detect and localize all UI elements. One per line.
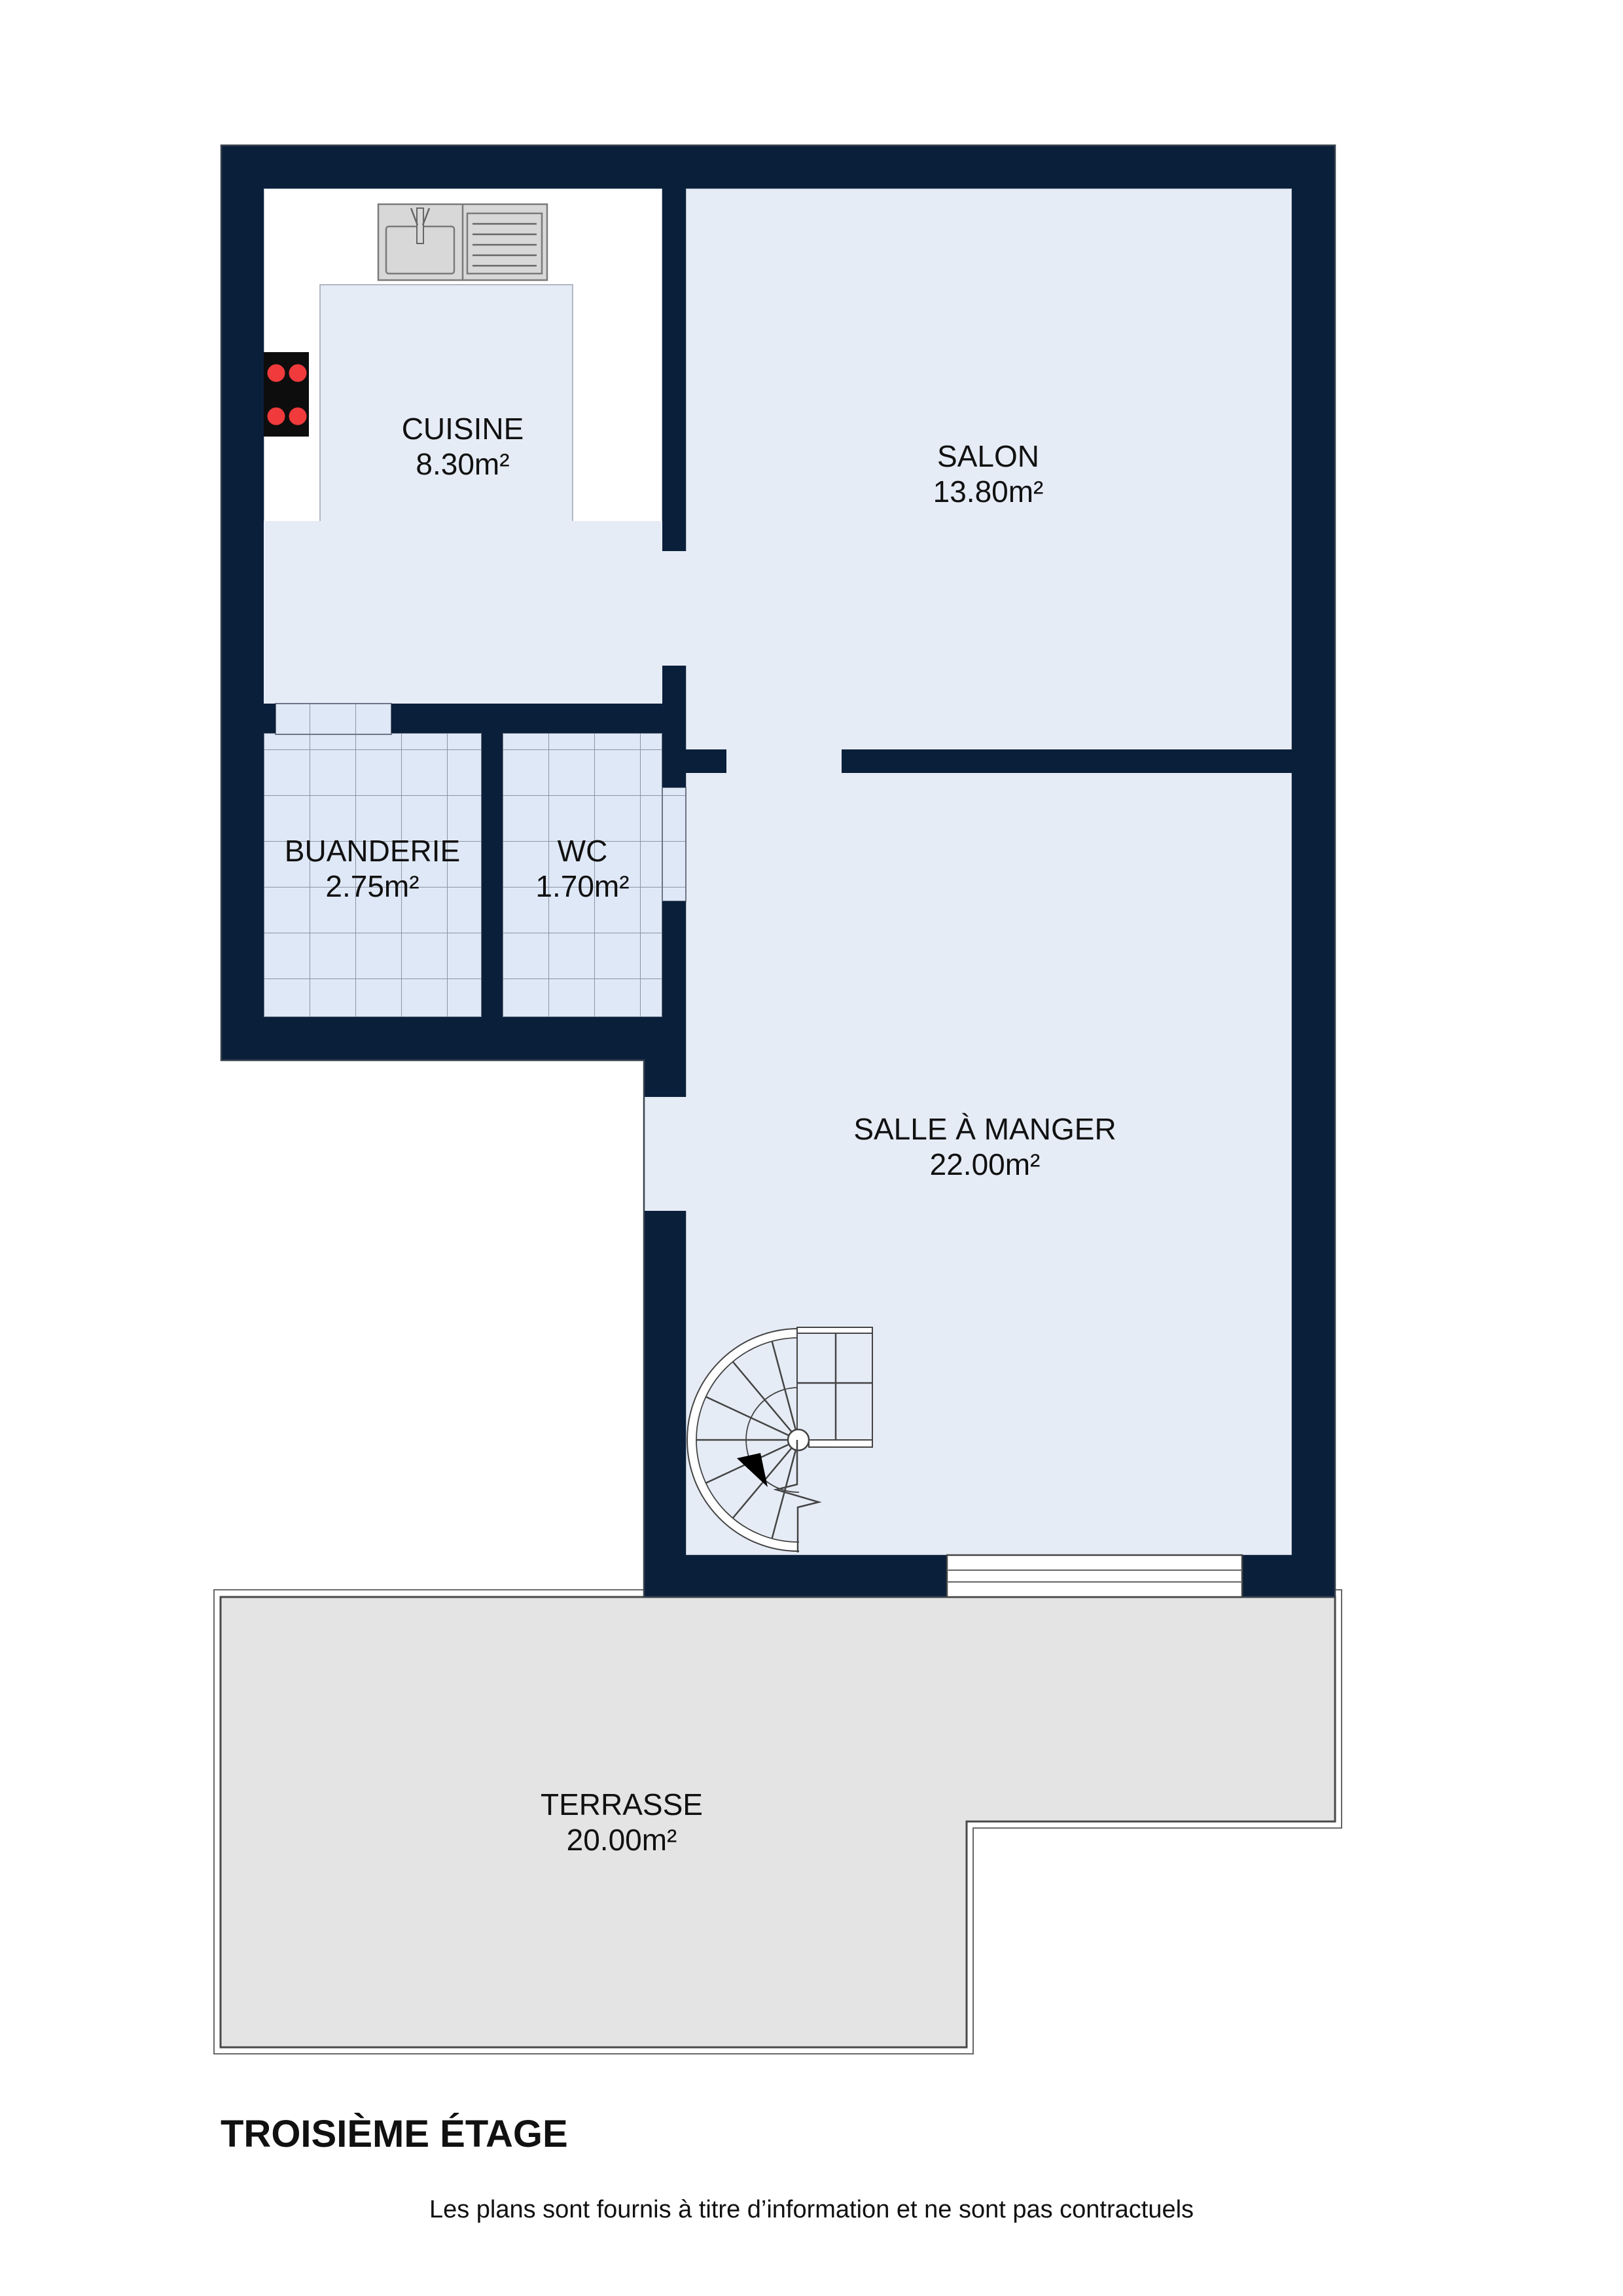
page-title: TROISIÈME ÉTAGE (221, 2113, 568, 2155)
sink-icon (378, 204, 547, 280)
terrasse-label: TERRASSE (541, 1787, 703, 1821)
wc-door-opening (662, 787, 686, 901)
salle-a-manger-area: 22.00m² (930, 1147, 1041, 1181)
salon-area: 13.80m² (933, 475, 1044, 509)
window-icon (947, 1555, 1242, 1597)
stove-icon (264, 352, 309, 437)
floor-plan: CUISINE 8.30m² SALON 13.80m² BUANDERIE 2… (0, 0, 1623, 2296)
salle-a-manger-label: SALLE À MANGER (853, 1112, 1116, 1146)
hall-floor (264, 521, 662, 704)
terrace-floor (221, 1597, 1335, 2047)
spiral-staircase-icon (687, 1326, 913, 1554)
cuisine-area: 8.30m² (416, 447, 509, 481)
salle-west-opening (644, 1097, 687, 1211)
cuisine-floor (320, 285, 573, 522)
hall-salon-doorway (661, 551, 687, 666)
terrasse-area: 20.00m² (567, 1823, 677, 1857)
terrace-slab (214, 1590, 1342, 2054)
buanderie-door-opening (276, 704, 391, 734)
wc-label: WC (558, 834, 608, 868)
cuisine-label: CUISINE (402, 412, 524, 446)
salon-label: SALON (937, 439, 1039, 473)
buanderie-area: 2.75m² (325, 869, 419, 903)
salon-salle-doorway (726, 749, 842, 773)
wc-area: 1.70m² (535, 869, 629, 903)
buanderie-label: BUANDERIE (285, 834, 460, 868)
disclaimer-text: Les plans sont fournis à titre d’informa… (429, 2196, 1194, 2223)
